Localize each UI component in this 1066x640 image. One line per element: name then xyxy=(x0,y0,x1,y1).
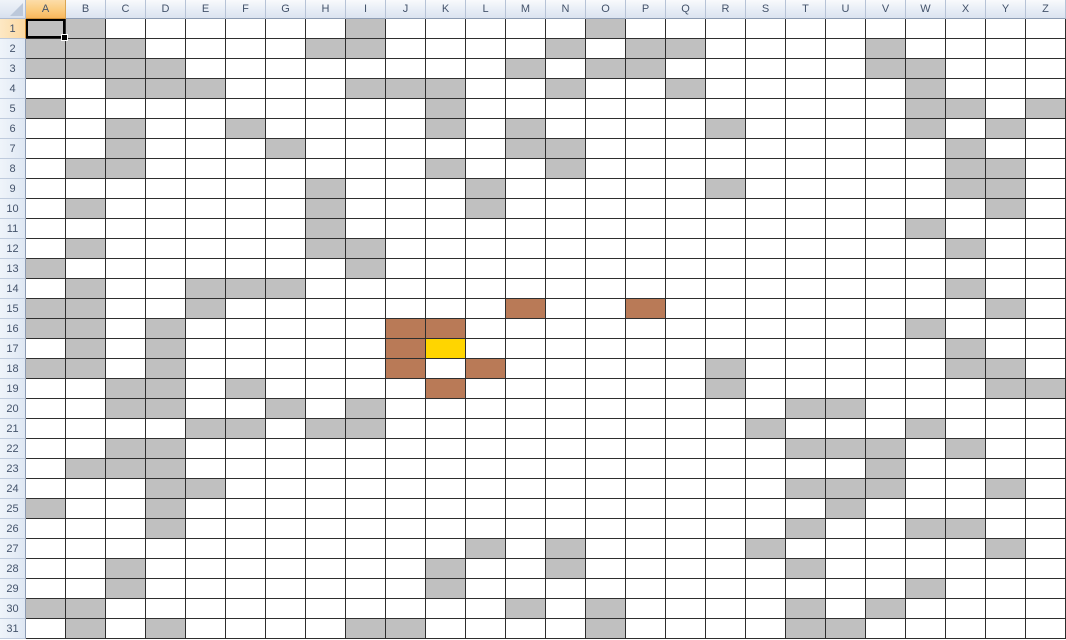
cell-U27[interactable] xyxy=(826,539,866,559)
cell-M1[interactable] xyxy=(506,19,546,39)
cell-K14[interactable] xyxy=(426,279,466,299)
cell-I11[interactable] xyxy=(346,219,386,239)
cell-Q22[interactable] xyxy=(666,439,706,459)
cell-Q11[interactable] xyxy=(666,219,706,239)
cell-A17[interactable] xyxy=(26,339,66,359)
cell-G15[interactable] xyxy=(266,299,306,319)
cell-R6[interactable] xyxy=(706,119,746,139)
cell-Z31[interactable] xyxy=(1026,619,1066,639)
cell-K11[interactable] xyxy=(426,219,466,239)
cell-H6[interactable] xyxy=(306,119,346,139)
cell-N29[interactable] xyxy=(546,579,586,599)
cell-D22[interactable] xyxy=(146,439,186,459)
cell-M26[interactable] xyxy=(506,519,546,539)
cell-V13[interactable] xyxy=(866,259,906,279)
cell-J22[interactable] xyxy=(386,439,426,459)
cell-P30[interactable] xyxy=(626,599,666,619)
cell-O30[interactable] xyxy=(586,599,626,619)
cell-A15[interactable] xyxy=(26,299,66,319)
column-header-Z[interactable]: Z xyxy=(1026,0,1066,19)
cell-D27[interactable] xyxy=(146,539,186,559)
cell-Q19[interactable] xyxy=(666,379,706,399)
cell-M11[interactable] xyxy=(506,219,546,239)
cell-Z6[interactable] xyxy=(1026,119,1066,139)
cell-M2[interactable] xyxy=(506,39,546,59)
cell-M31[interactable] xyxy=(506,619,546,639)
cell-X27[interactable] xyxy=(946,539,986,559)
cell-E11[interactable] xyxy=(186,219,226,239)
cell-C7[interactable] xyxy=(106,139,146,159)
cell-K3[interactable] xyxy=(426,59,466,79)
cell-B20[interactable] xyxy=(66,399,106,419)
cell-X8[interactable] xyxy=(946,159,986,179)
cell-J26[interactable] xyxy=(386,519,426,539)
cell-N24[interactable] xyxy=(546,479,586,499)
cell-I21[interactable] xyxy=(346,419,386,439)
cell-O26[interactable] xyxy=(586,519,626,539)
cell-I9[interactable] xyxy=(346,179,386,199)
cell-A2[interactable] xyxy=(26,39,66,59)
cell-M14[interactable] xyxy=(506,279,546,299)
cell-T14[interactable] xyxy=(786,279,826,299)
cell-U12[interactable] xyxy=(826,239,866,259)
cell-S12[interactable] xyxy=(746,239,786,259)
cell-G16[interactable] xyxy=(266,319,306,339)
cell-N2[interactable] xyxy=(546,39,586,59)
cell-R7[interactable] xyxy=(706,139,746,159)
cell-D20[interactable] xyxy=(146,399,186,419)
cell-V5[interactable] xyxy=(866,99,906,119)
cell-U2[interactable] xyxy=(826,39,866,59)
cell-E20[interactable] xyxy=(186,399,226,419)
cell-Q1[interactable] xyxy=(666,19,706,39)
cell-N8[interactable] xyxy=(546,159,586,179)
cell-B12[interactable] xyxy=(66,239,106,259)
cell-F8[interactable] xyxy=(226,159,266,179)
cell-J4[interactable] xyxy=(386,79,426,99)
cell-H11[interactable] xyxy=(306,219,346,239)
cell-E9[interactable] xyxy=(186,179,226,199)
cell-X10[interactable] xyxy=(946,199,986,219)
cell-Y13[interactable] xyxy=(986,259,1026,279)
cell-T13[interactable] xyxy=(786,259,826,279)
cell-Y7[interactable] xyxy=(986,139,1026,159)
row-header-1[interactable]: 1 xyxy=(0,19,26,39)
cell-O23[interactable] xyxy=(586,459,626,479)
cell-P14[interactable] xyxy=(626,279,666,299)
cell-Y21[interactable] xyxy=(986,419,1026,439)
cell-U13[interactable] xyxy=(826,259,866,279)
cell-X30[interactable] xyxy=(946,599,986,619)
cell-H16[interactable] xyxy=(306,319,346,339)
cell-L23[interactable] xyxy=(466,459,506,479)
cell-V23[interactable] xyxy=(866,459,906,479)
cell-I23[interactable] xyxy=(346,459,386,479)
cell-Q23[interactable] xyxy=(666,459,706,479)
cell-H29[interactable] xyxy=(306,579,346,599)
row-header-13[interactable]: 13 xyxy=(0,259,26,279)
cell-R16[interactable] xyxy=(706,319,746,339)
cell-N21[interactable] xyxy=(546,419,586,439)
cell-Q15[interactable] xyxy=(666,299,706,319)
cell-S17[interactable] xyxy=(746,339,786,359)
cell-W17[interactable] xyxy=(906,339,946,359)
cell-O28[interactable] xyxy=(586,559,626,579)
cell-U19[interactable] xyxy=(826,379,866,399)
cell-S22[interactable] xyxy=(746,439,786,459)
cell-K30[interactable] xyxy=(426,599,466,619)
cell-P20[interactable] xyxy=(626,399,666,419)
cell-A3[interactable] xyxy=(26,59,66,79)
cell-M21[interactable] xyxy=(506,419,546,439)
column-header-G[interactable]: G xyxy=(266,0,306,19)
cell-F2[interactable] xyxy=(226,39,266,59)
cell-F4[interactable] xyxy=(226,79,266,99)
cell-A5[interactable] xyxy=(26,99,66,119)
cell-L29[interactable] xyxy=(466,579,506,599)
cell-F12[interactable] xyxy=(226,239,266,259)
select-all-button[interactable] xyxy=(0,0,26,19)
column-header-V[interactable]: V xyxy=(866,0,906,19)
cell-H18[interactable] xyxy=(306,359,346,379)
cell-A26[interactable] xyxy=(26,519,66,539)
cell-Y12[interactable] xyxy=(986,239,1026,259)
cell-Y17[interactable] xyxy=(986,339,1026,359)
cell-L15[interactable] xyxy=(466,299,506,319)
cell-U8[interactable] xyxy=(826,159,866,179)
cell-E2[interactable] xyxy=(186,39,226,59)
cell-C15[interactable] xyxy=(106,299,146,319)
cell-L20[interactable] xyxy=(466,399,506,419)
cell-C21[interactable] xyxy=(106,419,146,439)
cell-D24[interactable] xyxy=(146,479,186,499)
column-header-L[interactable]: L xyxy=(466,0,506,19)
cell-J5[interactable] xyxy=(386,99,426,119)
cell-X21[interactable] xyxy=(946,419,986,439)
cell-J10[interactable] xyxy=(386,199,426,219)
cell-W11[interactable] xyxy=(906,219,946,239)
cell-Y5[interactable] xyxy=(986,99,1026,119)
cell-N26[interactable] xyxy=(546,519,586,539)
cell-U22[interactable] xyxy=(826,439,866,459)
cell-L18[interactable] xyxy=(466,359,506,379)
cell-F25[interactable] xyxy=(226,499,266,519)
column-header-A[interactable]: A xyxy=(26,0,66,19)
cell-Q16[interactable] xyxy=(666,319,706,339)
cell-T10[interactable] xyxy=(786,199,826,219)
cell-K16[interactable] xyxy=(426,319,466,339)
cell-J1[interactable] xyxy=(386,19,426,39)
cell-N6[interactable] xyxy=(546,119,586,139)
cell-E5[interactable] xyxy=(186,99,226,119)
cell-C8[interactable] xyxy=(106,159,146,179)
cell-R28[interactable] xyxy=(706,559,746,579)
cell-W15[interactable] xyxy=(906,299,946,319)
cell-X5[interactable] xyxy=(946,99,986,119)
cell-J23[interactable] xyxy=(386,459,426,479)
cell-X11[interactable] xyxy=(946,219,986,239)
cell-M24[interactable] xyxy=(506,479,546,499)
cell-K5[interactable] xyxy=(426,99,466,119)
cell-Q26[interactable] xyxy=(666,519,706,539)
cell-D29[interactable] xyxy=(146,579,186,599)
cell-V31[interactable] xyxy=(866,619,906,639)
cell-G27[interactable] xyxy=(266,539,306,559)
cell-J19[interactable] xyxy=(386,379,426,399)
cell-T2[interactable] xyxy=(786,39,826,59)
cell-I30[interactable] xyxy=(346,599,386,619)
cell-W6[interactable] xyxy=(906,119,946,139)
cell-F1[interactable] xyxy=(226,19,266,39)
cell-K10[interactable] xyxy=(426,199,466,219)
cell-V27[interactable] xyxy=(866,539,906,559)
cell-R24[interactable] xyxy=(706,479,746,499)
cell-U25[interactable] xyxy=(826,499,866,519)
column-header-P[interactable]: P xyxy=(626,0,666,19)
cell-K13[interactable] xyxy=(426,259,466,279)
cell-C10[interactable] xyxy=(106,199,146,219)
cell-S16[interactable] xyxy=(746,319,786,339)
cell-H7[interactable] xyxy=(306,139,346,159)
cell-S8[interactable] xyxy=(746,159,786,179)
cell-P16[interactable] xyxy=(626,319,666,339)
cell-E4[interactable] xyxy=(186,79,226,99)
cell-Q30[interactable] xyxy=(666,599,706,619)
column-header-M[interactable]: M xyxy=(506,0,546,19)
column-header-U[interactable]: U xyxy=(826,0,866,19)
cell-N7[interactable] xyxy=(546,139,586,159)
cell-T18[interactable] xyxy=(786,359,826,379)
cell-V11[interactable] xyxy=(866,219,906,239)
cell-U24[interactable] xyxy=(826,479,866,499)
cell-D15[interactable] xyxy=(146,299,186,319)
cell-K1[interactable] xyxy=(426,19,466,39)
cell-M7[interactable] xyxy=(506,139,546,159)
cell-X17[interactable] xyxy=(946,339,986,359)
cell-F3[interactable] xyxy=(226,59,266,79)
cell-P7[interactable] xyxy=(626,139,666,159)
cell-K22[interactable] xyxy=(426,439,466,459)
cell-N15[interactable] xyxy=(546,299,586,319)
cell-P2[interactable] xyxy=(626,39,666,59)
cell-C18[interactable] xyxy=(106,359,146,379)
cell-A16[interactable] xyxy=(26,319,66,339)
cell-J30[interactable] xyxy=(386,599,426,619)
cell-P25[interactable] xyxy=(626,499,666,519)
cell-I4[interactable] xyxy=(346,79,386,99)
cell-Z17[interactable] xyxy=(1026,339,1066,359)
cell-I7[interactable] xyxy=(346,139,386,159)
cell-S27[interactable] xyxy=(746,539,786,559)
cell-J14[interactable] xyxy=(386,279,426,299)
cell-Q28[interactable] xyxy=(666,559,706,579)
cell-D4[interactable] xyxy=(146,79,186,99)
cell-T15[interactable] xyxy=(786,299,826,319)
cell-O19[interactable] xyxy=(586,379,626,399)
cell-T26[interactable] xyxy=(786,519,826,539)
cell-B6[interactable] xyxy=(66,119,106,139)
cell-O25[interactable] xyxy=(586,499,626,519)
cell-E15[interactable] xyxy=(186,299,226,319)
row-header-4[interactable]: 4 xyxy=(0,79,26,99)
cell-F28[interactable] xyxy=(226,559,266,579)
cell-D19[interactable] xyxy=(146,379,186,399)
cell-O12[interactable] xyxy=(586,239,626,259)
cell-F27[interactable] xyxy=(226,539,266,559)
cell-O6[interactable] xyxy=(586,119,626,139)
cell-B29[interactable] xyxy=(66,579,106,599)
cell-Y3[interactable] xyxy=(986,59,1026,79)
cell-T17[interactable] xyxy=(786,339,826,359)
cell-A8[interactable] xyxy=(26,159,66,179)
cell-N14[interactable] xyxy=(546,279,586,299)
cell-R12[interactable] xyxy=(706,239,746,259)
column-header-R[interactable]: R xyxy=(706,0,746,19)
cell-G8[interactable] xyxy=(266,159,306,179)
cell-R10[interactable] xyxy=(706,199,746,219)
cell-Y26[interactable] xyxy=(986,519,1026,539)
cell-J16[interactable] xyxy=(386,319,426,339)
cell-T31[interactable] xyxy=(786,619,826,639)
cell-O21[interactable] xyxy=(586,419,626,439)
cell-F14[interactable] xyxy=(226,279,266,299)
cell-P9[interactable] xyxy=(626,179,666,199)
cell-G12[interactable] xyxy=(266,239,306,259)
cell-A29[interactable] xyxy=(26,579,66,599)
cell-B7[interactable] xyxy=(66,139,106,159)
cell-J13[interactable] xyxy=(386,259,426,279)
cell-V29[interactable] xyxy=(866,579,906,599)
cell-Z5[interactable] xyxy=(1026,99,1066,119)
cell-P12[interactable] xyxy=(626,239,666,259)
cell-J21[interactable] xyxy=(386,419,426,439)
cell-H5[interactable] xyxy=(306,99,346,119)
cell-Q20[interactable] xyxy=(666,399,706,419)
cell-R9[interactable] xyxy=(706,179,746,199)
cell-Q14[interactable] xyxy=(666,279,706,299)
cell-C12[interactable] xyxy=(106,239,146,259)
cell-B28[interactable] xyxy=(66,559,106,579)
cell-V7[interactable] xyxy=(866,139,906,159)
cell-E10[interactable] xyxy=(186,199,226,219)
row-header-20[interactable]: 20 xyxy=(0,399,26,419)
cell-U6[interactable] xyxy=(826,119,866,139)
cell-M30[interactable] xyxy=(506,599,546,619)
cell-P21[interactable] xyxy=(626,419,666,439)
cell-Z18[interactable] xyxy=(1026,359,1066,379)
cell-D21[interactable] xyxy=(146,419,186,439)
cell-A7[interactable] xyxy=(26,139,66,159)
cell-V12[interactable] xyxy=(866,239,906,259)
cell-E7[interactable] xyxy=(186,139,226,159)
cell-L21[interactable] xyxy=(466,419,506,439)
cell-W1[interactable] xyxy=(906,19,946,39)
cell-B3[interactable] xyxy=(66,59,106,79)
cell-M20[interactable] xyxy=(506,399,546,419)
cell-E31[interactable] xyxy=(186,619,226,639)
cell-N9[interactable] xyxy=(546,179,586,199)
cell-J24[interactable] xyxy=(386,479,426,499)
cell-P23[interactable] xyxy=(626,459,666,479)
cell-W7[interactable] xyxy=(906,139,946,159)
cell-Y24[interactable] xyxy=(986,479,1026,499)
cell-M15[interactable] xyxy=(506,299,546,319)
cell-Q21[interactable] xyxy=(666,419,706,439)
cell-E22[interactable] xyxy=(186,439,226,459)
row-header-10[interactable]: 10 xyxy=(0,199,26,219)
cell-H14[interactable] xyxy=(306,279,346,299)
cell-Q25[interactable] xyxy=(666,499,706,519)
row-header-7[interactable]: 7 xyxy=(0,139,26,159)
cell-J17[interactable] xyxy=(386,339,426,359)
cell-R19[interactable] xyxy=(706,379,746,399)
cell-C16[interactable] xyxy=(106,319,146,339)
cell-L31[interactable] xyxy=(466,619,506,639)
cell-X20[interactable] xyxy=(946,399,986,419)
cell-M28[interactable] xyxy=(506,559,546,579)
cell-K31[interactable] xyxy=(426,619,466,639)
cell-Q9[interactable] xyxy=(666,179,706,199)
cell-U16[interactable] xyxy=(826,319,866,339)
cell-N31[interactable] xyxy=(546,619,586,639)
cell-H8[interactable] xyxy=(306,159,346,179)
cell-X26[interactable] xyxy=(946,519,986,539)
cell-P27[interactable] xyxy=(626,539,666,559)
cell-O31[interactable] xyxy=(586,619,626,639)
cell-R4[interactable] xyxy=(706,79,746,99)
cell-I12[interactable] xyxy=(346,239,386,259)
cell-Z27[interactable] xyxy=(1026,539,1066,559)
cell-Y9[interactable] xyxy=(986,179,1026,199)
cell-K17[interactable] xyxy=(426,339,466,359)
cell-E8[interactable] xyxy=(186,159,226,179)
cell-X9[interactable] xyxy=(946,179,986,199)
cell-C22[interactable] xyxy=(106,439,146,459)
cell-B19[interactable] xyxy=(66,379,106,399)
cell-R26[interactable] xyxy=(706,519,746,539)
cell-U18[interactable] xyxy=(826,359,866,379)
cell-U7[interactable] xyxy=(826,139,866,159)
cell-H15[interactable] xyxy=(306,299,346,319)
cell-Y16[interactable] xyxy=(986,319,1026,339)
cell-S21[interactable] xyxy=(746,419,786,439)
cell-L3[interactable] xyxy=(466,59,506,79)
cell-Y1[interactable] xyxy=(986,19,1026,39)
cell-V26[interactable] xyxy=(866,519,906,539)
cell-X2[interactable] xyxy=(946,39,986,59)
cell-Z28[interactable] xyxy=(1026,559,1066,579)
cell-I3[interactable] xyxy=(346,59,386,79)
cell-F30[interactable] xyxy=(226,599,266,619)
row-header-17[interactable]: 17 xyxy=(0,339,26,359)
cell-J12[interactable] xyxy=(386,239,426,259)
cell-D13[interactable] xyxy=(146,259,186,279)
cell-L4[interactable] xyxy=(466,79,506,99)
cell-R1[interactable] xyxy=(706,19,746,39)
cell-W14[interactable] xyxy=(906,279,946,299)
cell-S31[interactable] xyxy=(746,619,786,639)
cell-S25[interactable] xyxy=(746,499,786,519)
cell-Q12[interactable] xyxy=(666,239,706,259)
row-header-5[interactable]: 5 xyxy=(0,99,26,119)
cell-V10[interactable] xyxy=(866,199,906,219)
cell-S26[interactable] xyxy=(746,519,786,539)
cell-T11[interactable] xyxy=(786,219,826,239)
cell-B31[interactable] xyxy=(66,619,106,639)
cell-G23[interactable] xyxy=(266,459,306,479)
cell-X31[interactable] xyxy=(946,619,986,639)
cell-F19[interactable] xyxy=(226,379,266,399)
